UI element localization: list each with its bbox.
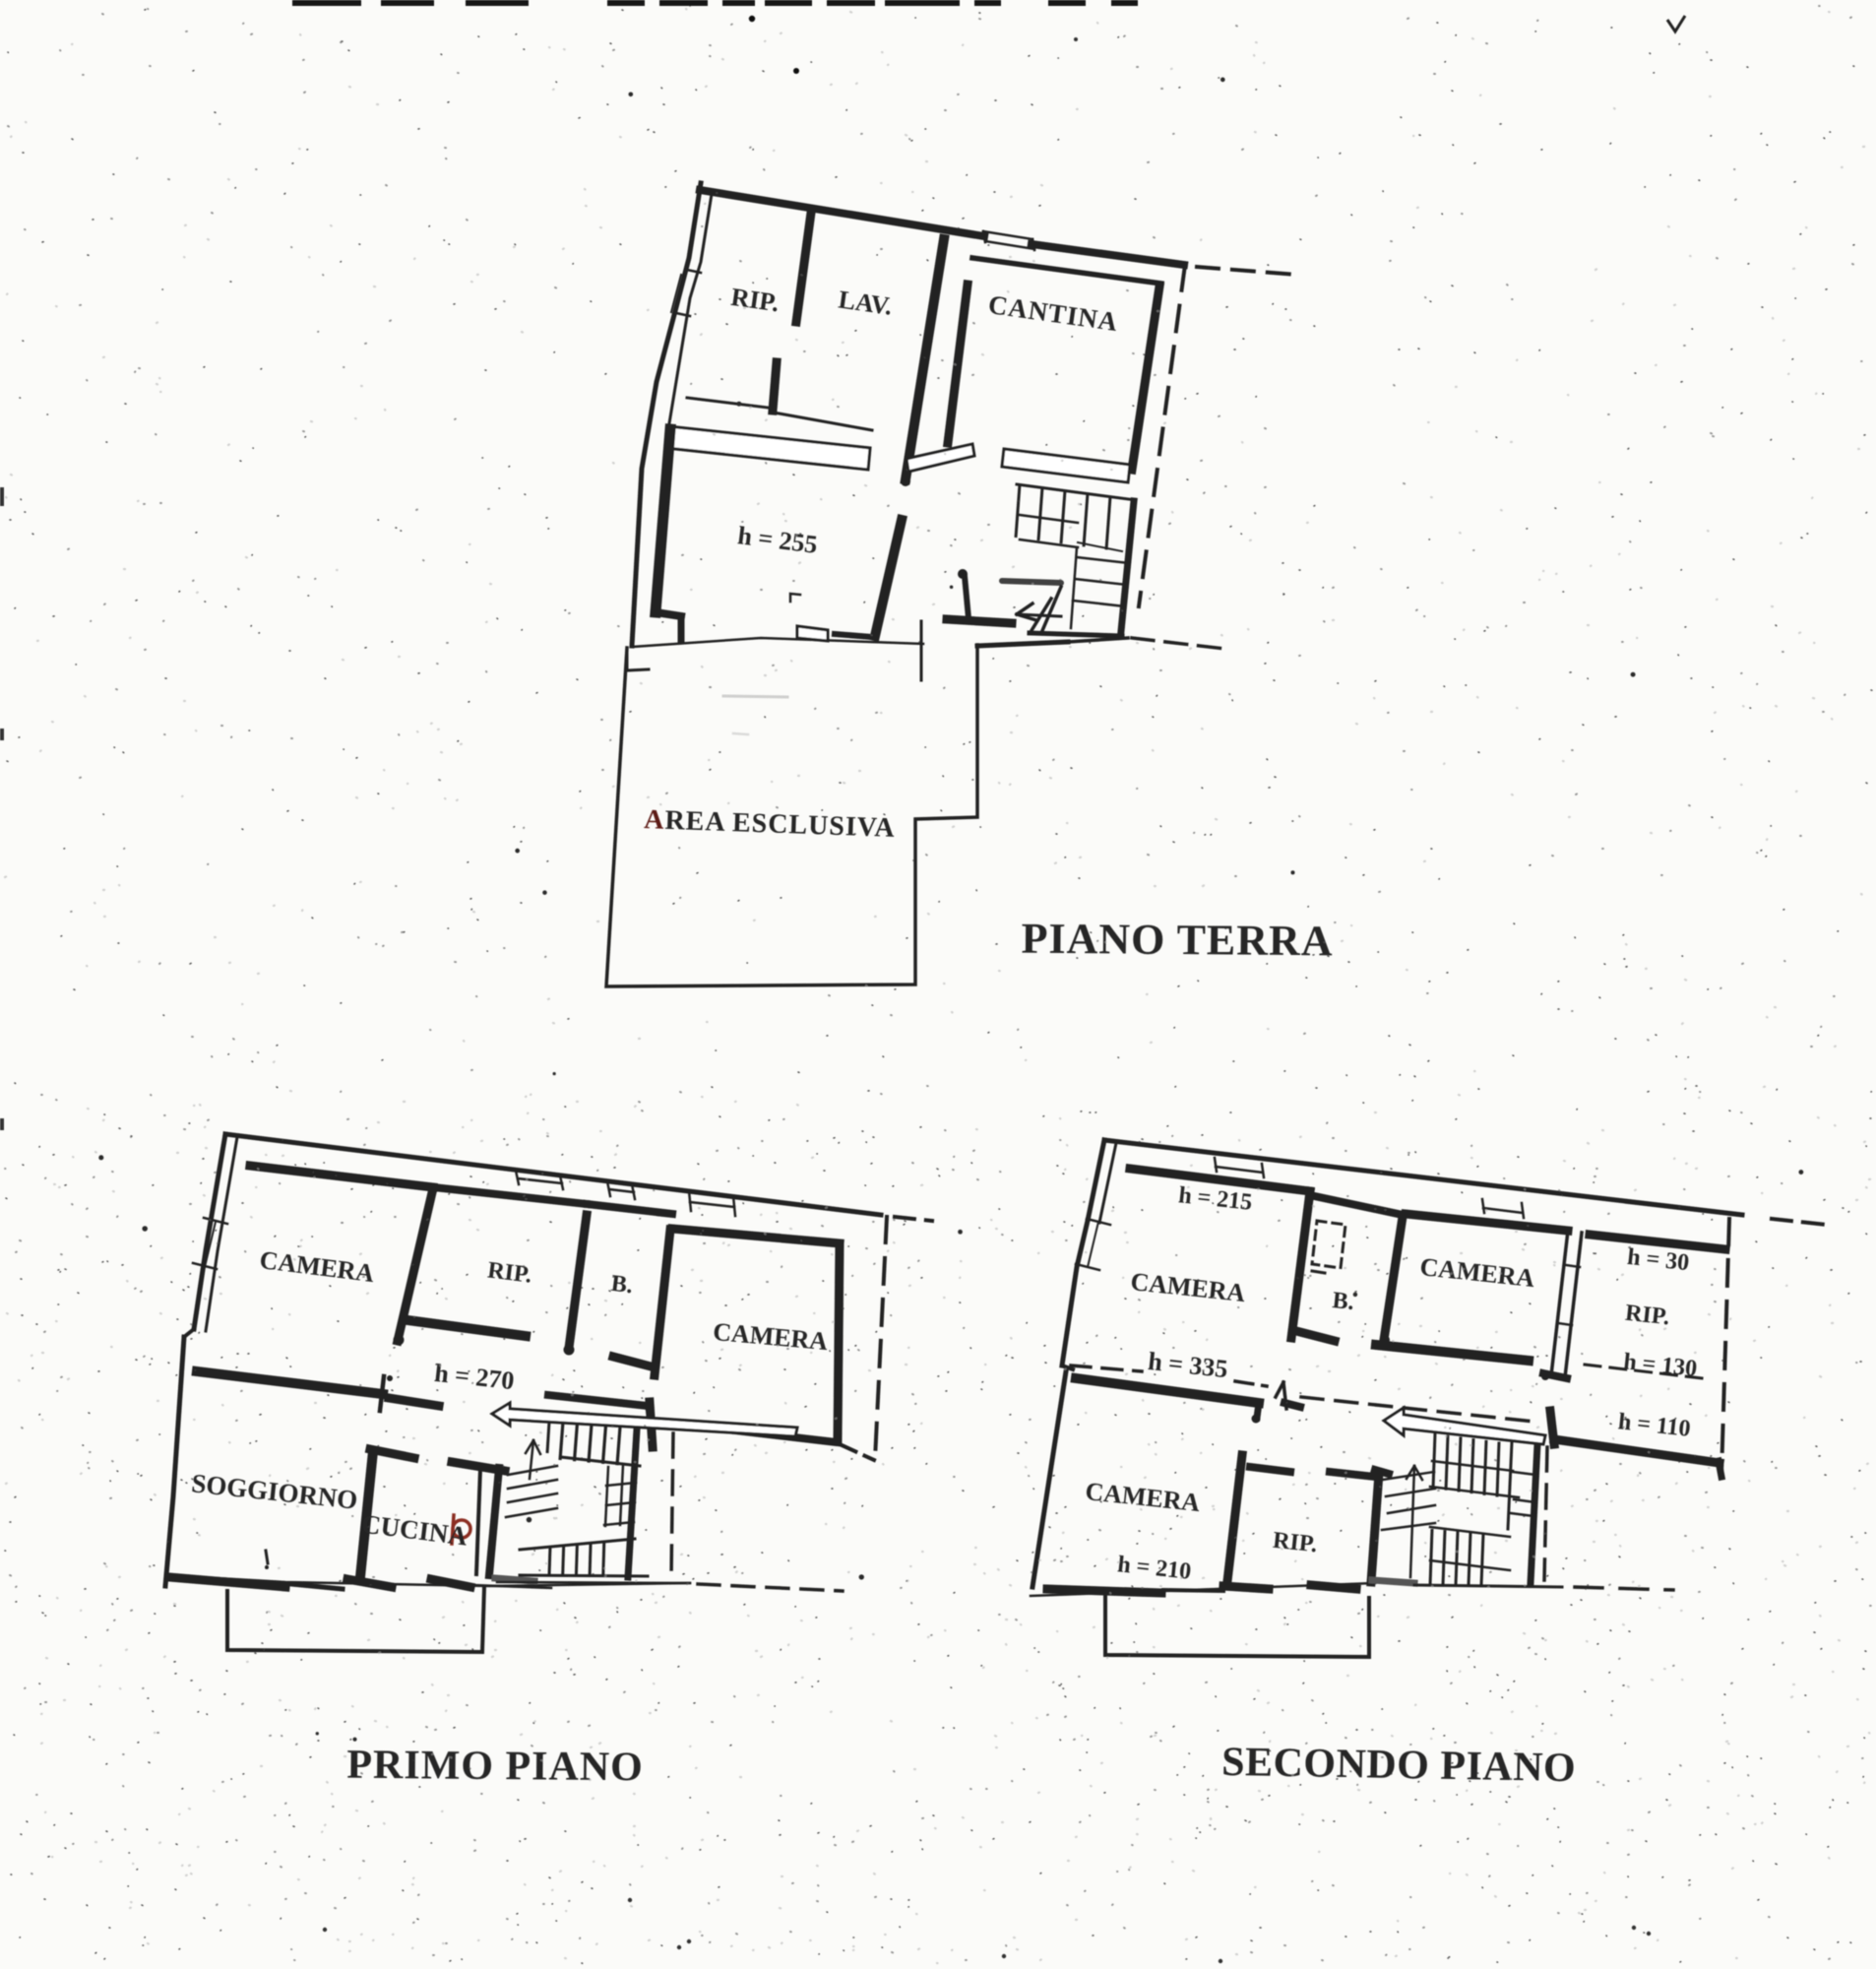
svg-text:PIANO TERRA: PIANO TERRA [1021,915,1333,966]
svg-text:PRIMO PIANO: PRIMO PIANO [346,1743,644,1791]
svg-text:B.: B. [1331,1288,1355,1315]
svg-text:B.: B. [609,1271,634,1299]
svg-text:RIP.: RIP. [486,1257,533,1288]
svg-text:SECONDO PIANO: SECONDO PIANO [1221,1740,1577,1791]
svg-text:RIP.: RIP. [1624,1301,1671,1331]
svg-text:RIP.: RIP. [1272,1528,1319,1558]
